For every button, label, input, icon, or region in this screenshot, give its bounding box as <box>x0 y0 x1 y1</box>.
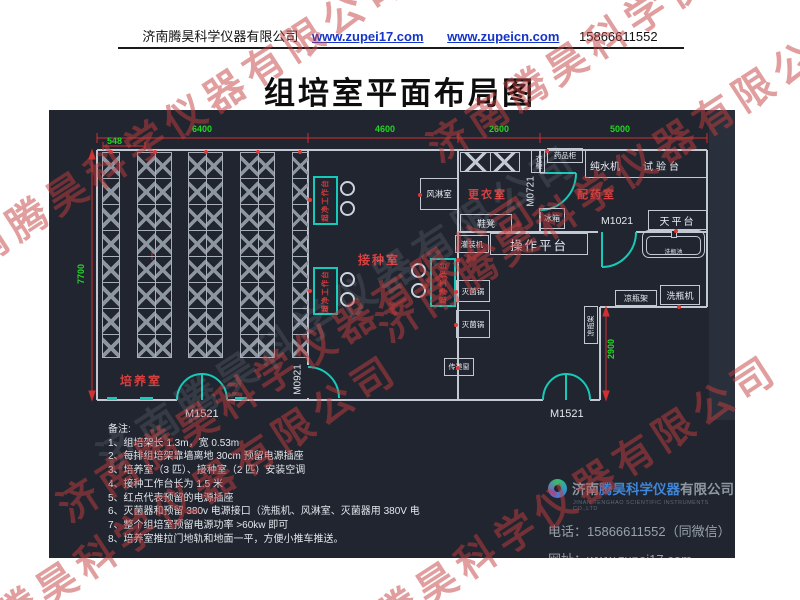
power-outlet-dot <box>677 305 681 309</box>
clean-bench-1-label: 超净工作台 <box>320 177 331 225</box>
stool <box>340 292 355 307</box>
air-shower: 风淋室 <box>420 178 458 210</box>
footer-phone: 电话：15866611552（同微信） <box>548 521 735 540</box>
stool <box>340 201 355 216</box>
footer-company-en: JINAN TENGHAO SCIENTIFIC INSTRUMENTS CO.… <box>573 500 735 512</box>
header-phone: 15866611552 <box>579 29 658 44</box>
bottle-rack-vertical-label: 凉瓶架 <box>586 308 596 344</box>
power-outlet-dot <box>545 149 549 153</box>
company-logo-icon <box>548 479 567 498</box>
clean-bench-3-label: 超净工作台 <box>438 259 449 307</box>
note-item: 4、接种工作台长为 1.5 米 <box>108 478 420 492</box>
note-item: 6、灭菌器和预留 380v 电源接口（洗瓶机、风淋室、灭菌器用 380V 电 <box>108 505 420 519</box>
power-outlet-dot <box>153 150 157 154</box>
wardrobe-label: 衣柜 <box>533 155 543 169</box>
sterilizer-1: 灭菌锅 <box>456 280 490 302</box>
dim-2600: 2600 <box>479 124 519 134</box>
balance-table: 天平台 <box>648 210 707 230</box>
footer-brand-row: 济南腾昊科学仪器有限公司 <box>548 478 735 498</box>
filling-machine: 灌装机 <box>455 235 489 253</box>
door-m1521b-right-leaf <box>566 374 590 400</box>
power-outlet-dot <box>298 150 302 154</box>
footer-brand: 腾昊科学仪器 <box>599 478 680 498</box>
note-item: 1、组培架长 1.3m，宽 0.53m <box>108 437 420 451</box>
culture-rack-3 <box>188 152 223 358</box>
power-outlet-dot <box>308 198 312 202</box>
test-bench-label: 试验台 <box>643 158 682 173</box>
footer-brand-suffix: 有限公司 <box>680 478 734 498</box>
dim-2900: 2900 <box>606 329 616 369</box>
dim-548: 548 <box>107 136 122 146</box>
power-outlet-dot <box>456 366 460 370</box>
door-label-m0921: M0921 <box>293 359 304 401</box>
power-outlet-dot <box>204 150 208 154</box>
culture-rack-4 <box>240 152 275 358</box>
footer-company-block: 济南腾昊科学仪器有限公司 JINAN TENGHAO SCIENTIFIC IN… <box>548 478 735 558</box>
room-label-dispensing: 配药室 <box>577 186 616 202</box>
door-m0921-swing <box>308 367 339 398</box>
power-outlet-dot <box>256 150 260 154</box>
door-m1521-left-leaf <box>177 374 202 400</box>
door-m1021-swing <box>602 232 636 267</box>
door-label-m1521-left: M1521 <box>185 408 219 420</box>
power-outlet-dot <box>454 290 458 294</box>
header: 济南腾昊科学仪器有限公司 www.zupei17.com www.zupeicn… <box>120 26 680 45</box>
power-outlet-dot <box>454 323 458 327</box>
door-rail-tick <box>235 397 247 400</box>
sterilizer-2: 灭菌锅 <box>456 310 490 338</box>
door-label-m0721: M0721 <box>526 171 537 213</box>
power-outlet-dot <box>456 258 460 262</box>
bottle-washer: 洗瓶机 <box>660 285 700 305</box>
note-item: 2、每排组培架靠墙离地 30cm 预留电源插座 <box>108 450 420 464</box>
dim-4600: 4600 <box>365 124 405 134</box>
stool <box>411 283 426 298</box>
water-purifier-label: 纯水机 <box>590 158 620 173</box>
footer-website[interactable]: 网址：www.zupei17.com <box>548 549 735 558</box>
header-company: 济南腾昊科学仪器有限公司 <box>142 29 298 44</box>
bottle-rack-horizontal: 凉瓶架 <box>615 290 657 306</box>
page-title: 组培室平面布局图 <box>0 68 800 113</box>
cad-canvas: 超净工作台 超净工作台 超净工作台 风淋室 衣柜 药品柜 纯水机 试验台 鞋凳 … <box>49 110 735 558</box>
header-divider <box>118 47 684 49</box>
power-outlet-dot <box>109 150 113 154</box>
door-label-m1021: M1021 <box>601 215 633 227</box>
operation-platform: 操作平台 <box>490 233 588 255</box>
dim-7700: 7700 <box>76 254 86 294</box>
door-m1521b-left-leaf <box>543 374 566 400</box>
clean-bench-2-label: 超净工作台 <box>320 268 331 316</box>
bottle-sink: 洗瓶池 <box>642 230 705 258</box>
door-rail-tick <box>140 397 153 400</box>
room-label-inoculation: 接种室 <box>358 251 400 268</box>
culture-rack-2 <box>137 152 172 358</box>
page: 济南腾昊科学仪器有限公司 www.zupei17.com www.zupeicn… <box>0 0 800 600</box>
dim-5000: 5000 <box>600 124 640 134</box>
locker-cabinet <box>460 152 520 172</box>
culture-rack-5 <box>292 152 309 358</box>
power-outlet-dot <box>308 289 312 293</box>
dim-6400: 6400 <box>182 124 222 134</box>
notes-heading: 备注: <box>108 423 420 437</box>
note-item: 7、整个组培室预留电源功率 >60kw 即可 <box>108 519 420 533</box>
stool <box>340 181 355 196</box>
notes-block: 备注: 1、组培架长 1.3m，宽 0.53m 2、每排组培架靠墙离地 30cm… <box>108 423 420 546</box>
medicine-cabinet: 药品柜 <box>547 148 583 163</box>
note-item: 5、红点代表预留的电源插座 <box>108 492 420 506</box>
header-link-zupei17[interactable]: www.zupei17.com <box>312 29 424 44</box>
stool <box>340 272 355 287</box>
culture-rack-1 <box>102 152 120 358</box>
fridge: 冰箱 <box>539 208 565 229</box>
door-m1521-right-leaf <box>202 374 227 400</box>
shoe-bench: 鞋凳 <box>460 214 512 232</box>
door-m0721-swing <box>540 173 576 210</box>
room-label-culture: 培养室 <box>120 372 162 389</box>
stool <box>411 263 426 278</box>
room-label-changing: 更衣室 <box>468 186 507 202</box>
bottle-sink-label: 洗瓶池 <box>643 247 704 256</box>
door-label-m1521-right: M1521 <box>550 408 584 420</box>
note-item: 8、培养室推拉门地轨和地面一平，方便小推车推送。 <box>108 533 420 547</box>
power-outlet-dot <box>418 193 422 197</box>
header-link-zupeicn[interactable]: www.zupeicn.com <box>447 29 559 44</box>
note-item: 3、培养室（3 匹）、接种室（2 匹）安装空调 <box>108 464 420 478</box>
power-outlet-dot <box>674 229 678 233</box>
door-rail-tick <box>107 397 117 400</box>
footer-brand-prefix: 济南 <box>572 478 599 498</box>
